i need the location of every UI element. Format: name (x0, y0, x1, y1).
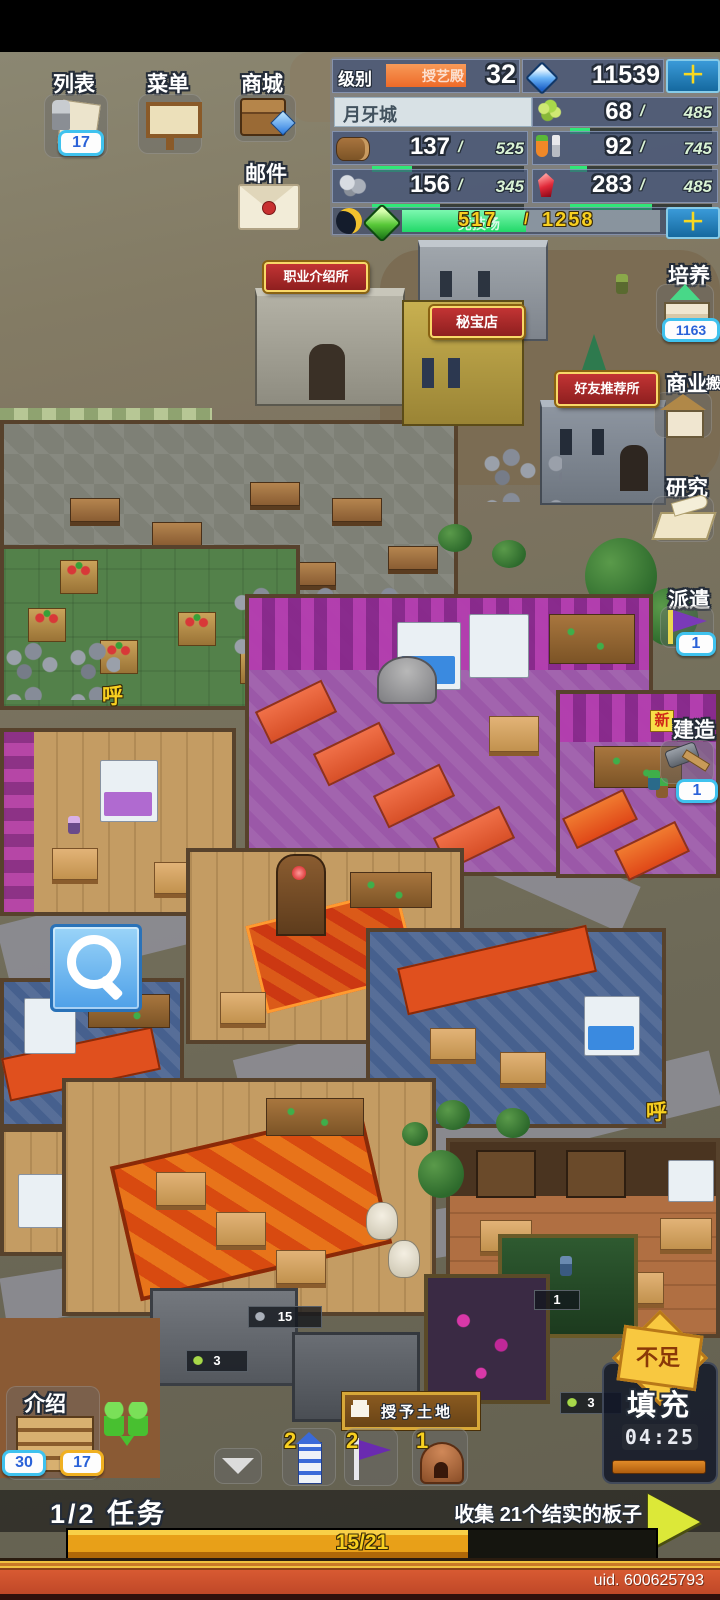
window (478, 271, 490, 297)
crop-mini-icon (193, 1356, 203, 1365)
door-arch (276, 854, 326, 936)
bed (668, 1160, 714, 1202)
land-banner: 授予土地 (342, 1392, 480, 1430)
intro-badge-a: 30 (2, 1450, 46, 1476)
door (620, 445, 648, 491)
table (430, 1028, 476, 1060)
table (500, 1052, 546, 1084)
guests-bubble (100, 1398, 152, 1440)
intro-label: 介绍 (24, 1388, 66, 1418)
lava-carpet (110, 1109, 392, 1302)
lumber-pile (388, 546, 438, 570)
building-job-office[interactable] (255, 288, 405, 406)
floor-mat (614, 821, 690, 881)
guest (68, 816, 80, 834)
mail-button[interactable] (238, 184, 300, 230)
build-button[interactable] (660, 740, 714, 784)
item-count: 2 (284, 1428, 296, 1454)
kiln-mouth (434, 1462, 448, 1478)
search-icon (67, 935, 121, 989)
xp-bar-track: 竞技场 (402, 210, 660, 232)
uid-text: uid. 600625793 (420, 1572, 704, 1590)
table (276, 1250, 326, 1284)
table (216, 1212, 266, 1246)
up-arrow-icon (670, 284, 700, 300)
wax-seal-icon (262, 201, 276, 215)
table (52, 848, 98, 880)
window (440, 271, 452, 297)
curtain-wall (4, 732, 34, 912)
lumber-pile (332, 498, 382, 522)
house-outline-icon (351, 1405, 369, 1417)
house-body-icon (666, 410, 704, 438)
business-partial-text: 搬 (706, 372, 720, 393)
floor-mat (313, 722, 395, 787)
flag-icon (359, 1440, 391, 1460)
table (660, 1218, 712, 1250)
worker (560, 1256, 572, 1276)
window (592, 429, 604, 455)
fill-action-label: 填充 (620, 1382, 700, 1424)
rock-outcrop (478, 446, 562, 502)
crystal-max: 485 (654, 177, 712, 197)
crop-value: 68 (562, 98, 632, 126)
bed-blanket (104, 792, 152, 816)
stone-sep: / (458, 177, 462, 195)
footer-divider (0, 1558, 720, 1570)
fill-progress-strip (612, 1460, 706, 1474)
bed-blanket (588, 1026, 634, 1050)
counter (266, 1098, 364, 1136)
scroll-icon (651, 512, 716, 540)
list-badge: 17 (58, 130, 104, 156)
dresser (489, 716, 539, 752)
bubble-tail (120, 1436, 134, 1446)
fill-timer: 04:25 (622, 1424, 698, 1450)
tower-icon (298, 1442, 322, 1484)
task-counter: 1/2 任务 (50, 1492, 167, 1531)
level-value: 32 (460, 59, 516, 90)
item-count: 2 (346, 1428, 358, 1454)
xp-value: 517 (458, 209, 497, 232)
item-count: 1 (416, 1428, 428, 1454)
game-screen: 列表 17 菜单 商城 邮件 级别 授艺殿 32 11539 ＋ 月牙城 (0, 0, 720, 1600)
mall-button[interactable] (234, 94, 296, 142)
intro-badge-b: 17 (60, 1450, 104, 1476)
task-progress-text: 15/21 (68, 1531, 656, 1555)
item-button-kiln[interactable]: 1 (412, 1428, 468, 1486)
tree (418, 1150, 464, 1198)
window (448, 358, 460, 388)
person-icon (104, 1402, 124, 1436)
city-name-box: 月牙城 (334, 97, 532, 127)
status-bar (0, 0, 720, 52)
person-icon (128, 1402, 148, 1436)
wood-max: 525 (470, 139, 524, 159)
city-name: 月牙城 (343, 101, 397, 127)
floor-mat (373, 764, 455, 829)
kiln (377, 656, 437, 704)
bush (438, 524, 472, 552)
signboard-icon (146, 102, 202, 138)
bed (469, 614, 529, 678)
lumber-pile (250, 482, 300, 506)
table (156, 1172, 206, 1206)
food-icon (536, 135, 548, 157)
build-badge: 1 (676, 779, 718, 803)
tavern-door (476, 1150, 536, 1198)
lumber-pile (70, 498, 120, 522)
crop-icon (536, 99, 562, 123)
potted-plant (402, 1122, 428, 1146)
tavern-door (566, 1150, 626, 1198)
task-progress-bar: 15/21 (66, 1528, 658, 1560)
stone-max: 345 (470, 177, 524, 197)
fruit-crate (60, 560, 98, 594)
door-orb (292, 866, 306, 880)
hud-panel: 级别 授艺殿 32 11539 ＋ 月牙城 68 / 485 137 / 525… (330, 57, 720, 237)
wood-sep: / (458, 139, 462, 157)
chevron-down-icon (222, 1458, 254, 1474)
level-label: 级别 (338, 65, 372, 90)
red-carpet-strip (397, 925, 597, 1015)
magnifier-button[interactable] (50, 924, 142, 1012)
door (309, 344, 345, 400)
mushroom-plot (424, 1274, 550, 1404)
npc (648, 770, 660, 790)
platform-count-badge: 1 (534, 1290, 580, 1310)
lumber-pile (152, 522, 202, 546)
warning-text: 不足 (636, 1340, 680, 1372)
speech-bubble: 呼 (102, 680, 123, 710)
xp-sep: / (524, 211, 528, 229)
flag-icon (673, 610, 707, 632)
building-label-behind: 授艺殿 (422, 66, 464, 86)
bush (436, 1100, 470, 1130)
sign-post (166, 134, 174, 150)
speech-bubble: 呼 (646, 1096, 667, 1126)
floor-mat (562, 789, 638, 849)
sack (388, 1240, 420, 1278)
crop-count-badge: 3 (186, 1350, 248, 1372)
crystal-value: 283 (562, 171, 632, 199)
bed (18, 1174, 68, 1228)
xp-plus-button[interactable]: ＋ (666, 207, 720, 239)
stone-count-badge: 15 (248, 1306, 322, 1328)
research-button[interactable] (652, 496, 714, 542)
crystal-sep: / (640, 177, 644, 195)
stone-icon (336, 173, 368, 197)
food-value: 92 (562, 133, 632, 161)
business-button[interactable] (654, 392, 712, 438)
window (422, 358, 434, 388)
bush (496, 1108, 530, 1138)
item-button-tower[interactable]: 2 (282, 1428, 336, 1486)
fork-icon (552, 135, 560, 157)
stone-mini-icon (255, 1312, 265, 1321)
wood-icon (336, 137, 370, 161)
house-roof-icon (660, 394, 706, 410)
wood-value: 137 (370, 133, 450, 161)
task-description: 收集 21个结实的板子 (400, 1498, 642, 1527)
crop-max: 485 (654, 103, 712, 123)
bush (492, 540, 526, 568)
npc (616, 274, 628, 294)
plaque-treasure-shop[interactable]: 秘宝店 (430, 306, 524, 338)
counter (350, 872, 432, 908)
footer-strip: uid. 600625793 (0, 1570, 720, 1594)
person-icon (52, 100, 70, 130)
warning-starburst: 不足 (616, 1322, 700, 1388)
land-banner-label: 授予土地 (381, 1401, 453, 1422)
fruit-crate (178, 612, 216, 646)
tower-roof-icon (296, 1432, 322, 1444)
food-max: 745 (654, 139, 712, 159)
xp-max: 1258 (542, 209, 595, 232)
item-button-flag[interactable]: 2 (344, 1428, 398, 1486)
plaque-friend-office[interactable]: 好友推荐所 (556, 372, 658, 406)
dispatch-badge: 1 (676, 632, 716, 656)
shelf (549, 614, 635, 664)
fruit-crate (28, 608, 66, 642)
floor-mat (255, 680, 337, 745)
menu-button[interactable] (138, 94, 202, 154)
crop-mini-icon (567, 1398, 577, 1407)
plaque-job-office[interactable]: 职业介绍所 (264, 262, 368, 292)
table (220, 992, 266, 1024)
crop-sep: / (640, 103, 644, 121)
sack (366, 1202, 398, 1240)
train-badge: 1163 (662, 318, 720, 342)
footer-bottom (0, 1594, 720, 1600)
moon-icon (336, 208, 362, 234)
stone-value: 156 (370, 171, 450, 199)
room-grand-hall (62, 1078, 436, 1316)
collapse-button[interactable] (214, 1448, 262, 1484)
food-sep: / (640, 139, 644, 157)
diamond-plus-button[interactable]: ＋ (666, 59, 720, 93)
diamond-count: 11539 (556, 61, 660, 90)
